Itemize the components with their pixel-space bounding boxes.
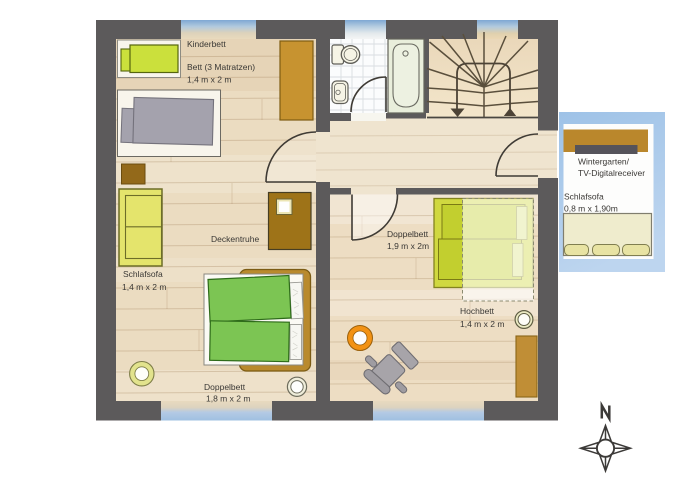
svg-text:Hochbett: Hochbett (460, 306, 495, 316)
svg-text:1,4 m x 2 m: 1,4 m x 2 m (460, 319, 504, 329)
svg-text:Schlafsofa: Schlafsofa (564, 192, 604, 202)
svg-text:Doppelbett: Doppelbett (387, 229, 429, 239)
svg-text:Bett (3 Matratzen): Bett (3 Matratzen) (187, 62, 255, 72)
svg-text:1,4 m x 2 m: 1,4 m x 2 m (187, 75, 231, 85)
svg-text:0,8 m x 1,90m: 0,8 m x 1,90m (564, 204, 618, 214)
svg-text:Schlafsofa: Schlafsofa (123, 269, 163, 279)
svg-text:TV-Digitalreceiver: TV-Digitalreceiver (578, 168, 645, 178)
svg-text:Kinderbett: Kinderbett (187, 39, 226, 49)
svg-text:Deckentruhe: Deckentruhe (211, 234, 259, 244)
svg-text:Wintergarten/: Wintergarten/ (578, 157, 630, 167)
svg-text:Doppelbett: Doppelbett (204, 382, 246, 392)
svg-text:1,9 m x 2m: 1,9 m x 2m (387, 241, 429, 251)
svg-text:1,8 m x 2 m: 1,8 m x 2 m (206, 394, 250, 404)
svg-text:1,4 m x 2 m: 1,4 m x 2 m (122, 282, 166, 292)
